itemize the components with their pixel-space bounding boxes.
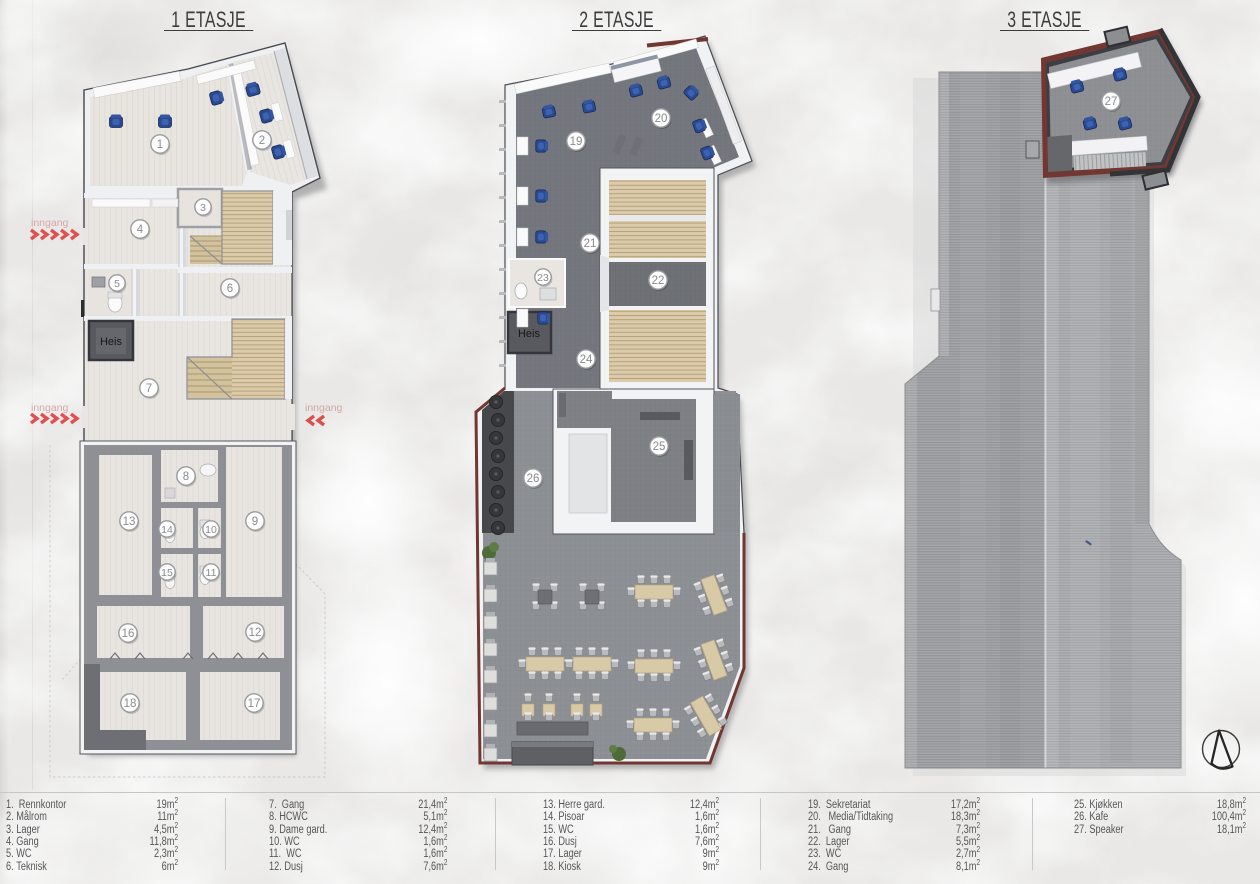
svg-text:24: 24 xyxy=(580,354,593,366)
svg-text:4: 4 xyxy=(137,224,144,236)
svg-text:21: 21 xyxy=(584,238,597,250)
svg-text:12: 12 xyxy=(249,627,262,639)
svg-text:9: 9 xyxy=(252,516,258,528)
svg-text:26: 26 xyxy=(527,473,540,485)
svg-text:1: 1 xyxy=(157,139,163,151)
svg-text:11: 11 xyxy=(206,567,217,579)
svg-text:6: 6 xyxy=(227,283,233,295)
svg-text:5: 5 xyxy=(114,278,120,290)
svg-text:13: 13 xyxy=(123,516,136,528)
svg-text:2: 2 xyxy=(259,135,265,147)
svg-text:Heis: Heis xyxy=(100,336,123,348)
svg-text:10: 10 xyxy=(205,524,217,536)
svg-text:27: 27 xyxy=(1105,96,1118,108)
svg-text:inngang: inngang xyxy=(31,217,69,229)
svg-text:inngang: inngang xyxy=(31,402,69,414)
svg-text:15: 15 xyxy=(161,567,173,579)
svg-text:8: 8 xyxy=(183,471,189,483)
svg-text:7: 7 xyxy=(146,383,152,395)
svg-text:3: 3 xyxy=(200,202,206,214)
svg-text:16: 16 xyxy=(122,628,135,640)
svg-text:inngang: inngang xyxy=(305,402,343,414)
svg-text:25: 25 xyxy=(653,441,666,453)
svg-text:22: 22 xyxy=(652,275,665,287)
svg-text:23: 23 xyxy=(537,272,549,284)
svg-text:19: 19 xyxy=(570,136,583,148)
svg-text:17: 17 xyxy=(248,698,261,710)
svg-text:Heis: Heis xyxy=(518,328,541,340)
svg-text:14: 14 xyxy=(161,524,173,536)
svg-text:18: 18 xyxy=(124,698,137,710)
svg-text:20: 20 xyxy=(655,113,668,125)
